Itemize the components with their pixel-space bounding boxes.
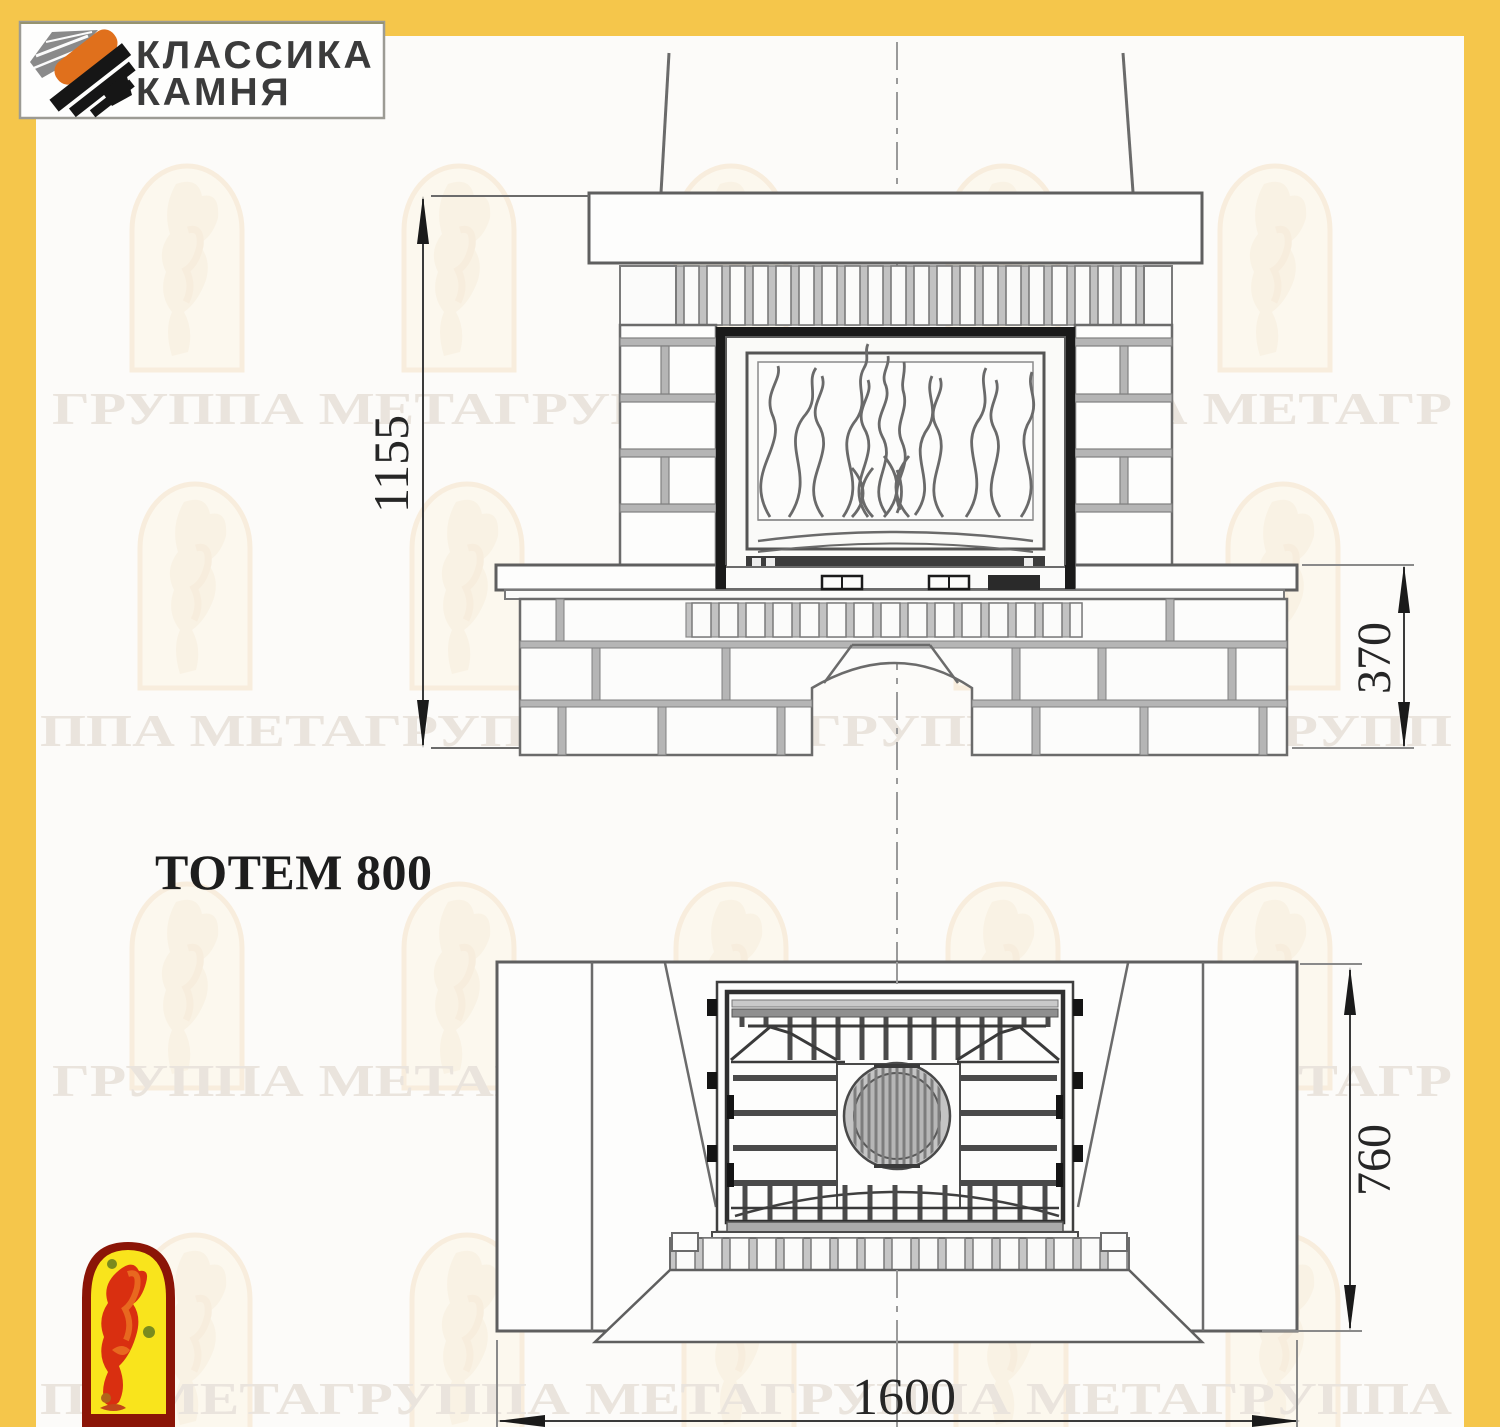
- svg-text:КАМНЯ: КАМНЯ: [136, 71, 292, 114]
- svg-text:370: 370: [1348, 622, 1401, 694]
- svg-text:1600: 1600: [852, 1369, 956, 1426]
- svg-text:760: 760: [1348, 1124, 1401, 1196]
- svg-text:ТОТЕМ 800: ТОТЕМ 800: [155, 844, 432, 900]
- svg-text:ПА МЕТАГРУППА МЕТАГРУППА МЕТАГ: ПА МЕТАГРУППА МЕТАГРУППА МЕТАГРУППА: [40, 1373, 1452, 1424]
- svg-text:1155: 1155: [363, 415, 419, 513]
